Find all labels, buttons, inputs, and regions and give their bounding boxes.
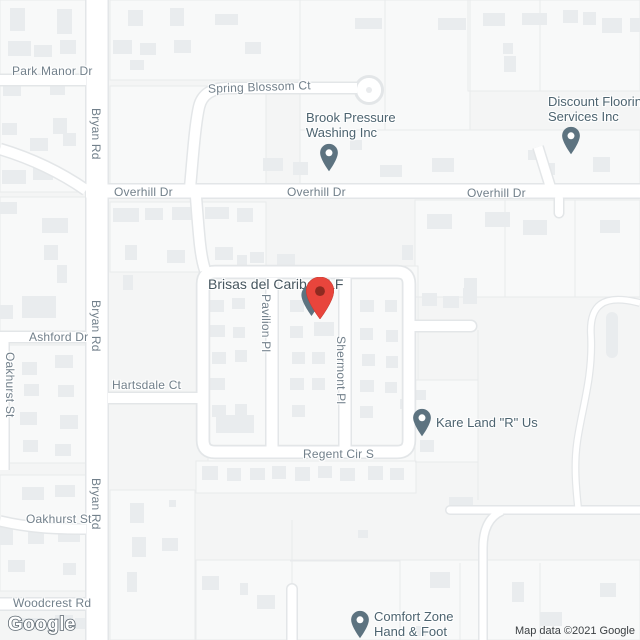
street-label-regent: Regent Cir S [303, 447, 374, 461]
street-label-overhill-3: Overhill Dr [467, 186, 526, 200]
street-label-woodcrest: Woodcrest Rd [13, 596, 91, 610]
street-label-shermont: Shermont Pl [334, 336, 348, 404]
street-label-park-manor: Park Manor Dr [12, 64, 93, 78]
map-viewport[interactable]: Park Manor Dr Spring Blossom Ct Overhill… [0, 0, 640, 640]
comfort-poi-pin-icon[interactable] [350, 610, 370, 639]
discount-poi-pin-icon[interactable] [561, 126, 581, 155]
google-logo-text: Google [8, 614, 76, 635]
street-label-oakhurst-horizontal: Oakhurst St [26, 512, 92, 526]
poi-label-kare-land[interactable]: Kare Land "R" Us [436, 415, 538, 430]
google-logo[interactable]: Google [6, 611, 76, 637]
street-label-bryan-2: Bryan Rd [89, 300, 103, 352]
street-label-oakhurst-vertical: Oakhurst St [3, 352, 17, 418]
street-label-overhill-2: Overhill Dr [287, 185, 346, 199]
street-label-ashford: Ashford Dr [29, 330, 88, 344]
poi-label-brook-pressure-washing[interactable]: Brook Pressure Washing Inc [306, 110, 396, 140]
poi-label-discount-flooring[interactable]: Discount Flooring Services Inc [548, 94, 640, 124]
street-label-overhill-1: Overhill Dr [114, 185, 173, 199]
red-marker-icon[interactable] [306, 277, 334, 319]
map-attribution: Map data ©2021 Google [515, 625, 635, 637]
poi-label-comfort-zone[interactable]: Comfort Zone Hand & Foot [374, 609, 453, 639]
brook-poi-pin-icon[interactable] [319, 143, 339, 172]
kare-poi-pin-icon[interactable] [412, 408, 432, 437]
street-label-hartsdale: Hartsdale Ct [112, 378, 181, 392]
street-label-bryan-1: Bryan Rd [89, 108, 103, 160]
street-label-pavilion: Pavilion Pl [259, 294, 273, 352]
